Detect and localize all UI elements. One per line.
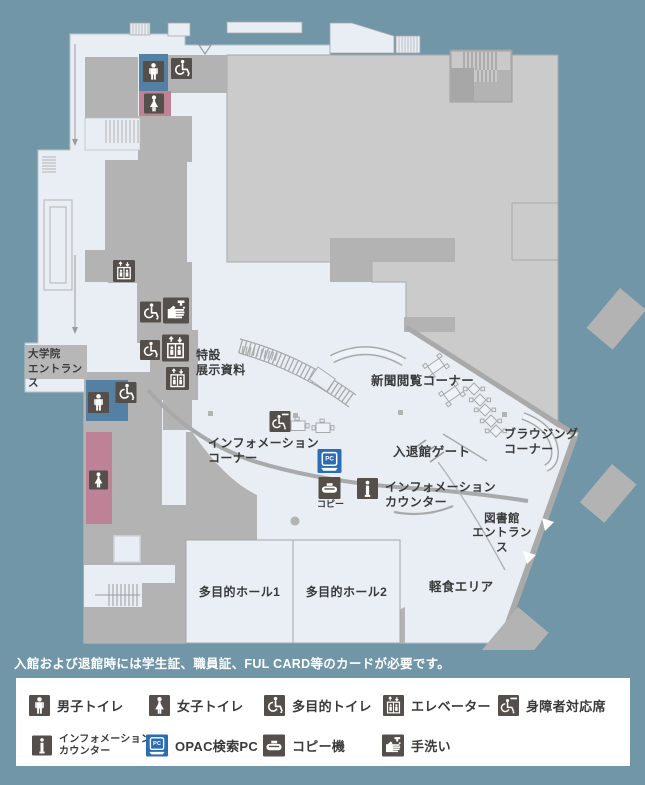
male-toilet-icon — [143, 61, 164, 82]
label-info-corner: インフォメーション コーナー — [208, 436, 319, 466]
label-special-exhibit: 特設 展示資料 — [196, 348, 246, 378]
legend-label: インフォメーション カウンター — [59, 734, 151, 757]
label-entrance-gate: 入退館ゲート — [393, 445, 470, 461]
legend-label: OPAC検索PC — [175, 736, 258, 755]
legend: 男子トイレ 女子トイレ 多目的トイレ エレベーター 身障者対応席 インフォメーシ… — [16, 678, 630, 766]
library-floor-map-page: PC — [0, 0, 645, 785]
legend-item-opac-pc: OPAC検索PC — [146, 734, 258, 757]
label-snack-area: 軽食エリア — [429, 580, 494, 596]
multipurpose-toilet-icon — [264, 694, 285, 717]
multipurpose-toilet-icon — [116, 382, 137, 403]
multipurpose-toilet-icon — [140, 302, 161, 323]
entry-card-note: 入館および退館時には学生証、職員証、FUL CARD等のカードが必要です。 — [14, 653, 629, 672]
label-copy: コピー — [317, 499, 344, 510]
copier-icon — [263, 734, 285, 757]
legend-item-accessible-seat: 身障者対応席 — [498, 694, 606, 717]
label-info-counter: インフォメーション カウンター — [385, 480, 496, 510]
label-library-entrance: 図書館 エントランス — [468, 512, 536, 555]
multipurpose-toilet-icon — [171, 58, 192, 79]
label-hall2: 多目的ホール2 — [293, 585, 400, 600]
opac-pc-icon — [146, 734, 168, 757]
legend-item-female-toilet: 女子トイレ — [149, 694, 244, 717]
label-hall1: 多目的ホール1 — [186, 585, 293, 600]
label-browsing-corner: ブラウジング コーナー — [504, 427, 578, 457]
accessible-seat-icon — [498, 694, 519, 717]
multipurpose-toilet-icon — [140, 340, 160, 360]
legend-label: 手洗い — [411, 736, 451, 755]
copier-icon — [319, 477, 341, 499]
legend-label: エレベーター — [411, 696, 491, 715]
elevator-icon — [166, 367, 189, 390]
legend-label: コピー機 — [292, 736, 345, 755]
info-counter-icon — [357, 478, 378, 499]
elevator-icon — [113, 260, 135, 282]
hand-wash-icon — [382, 734, 404, 757]
male-toilet-icon — [29, 694, 50, 717]
hand-wash-icon — [163, 298, 189, 324]
legend-item-elevator: エレベーター — [383, 694, 491, 717]
male-toilet-icon — [88, 392, 109, 413]
opac-pc-icon — [318, 449, 342, 473]
floor-map: PC — [0, 0, 645, 650]
legend-label: 男子トイレ — [57, 696, 124, 715]
legend-label: 女子トイレ — [177, 696, 244, 715]
legend-item-copier: コピー機 — [263, 734, 345, 757]
elevator-icon — [162, 335, 189, 362]
elevator-icon — [383, 694, 404, 717]
female-toilet-icon — [89, 471, 108, 490]
label-grad-entrance: 大学院 エントランス — [25, 345, 87, 379]
legend-item-info-counter: インフォメーション カウンター — [32, 734, 151, 757]
legend-item-male-toilet: 男子トイレ — [29, 694, 124, 717]
female-toilet-icon — [144, 94, 164, 114]
legend-label: 身障者対応席 — [526, 696, 606, 715]
legend-item-multipurpose-toilet: 多目的トイレ — [264, 694, 372, 717]
legend-label: 多目的トイレ — [292, 696, 372, 715]
label-newspaper-corner: 新聞閲覧コーナー — [371, 374, 474, 390]
legend-item-hand-wash: 手洗い — [382, 734, 451, 757]
info-counter-icon — [32, 734, 52, 757]
female-toilet-icon — [149, 694, 170, 717]
accessible-seat-icon — [270, 411, 291, 432]
corridor-strip — [103, 283, 137, 343]
